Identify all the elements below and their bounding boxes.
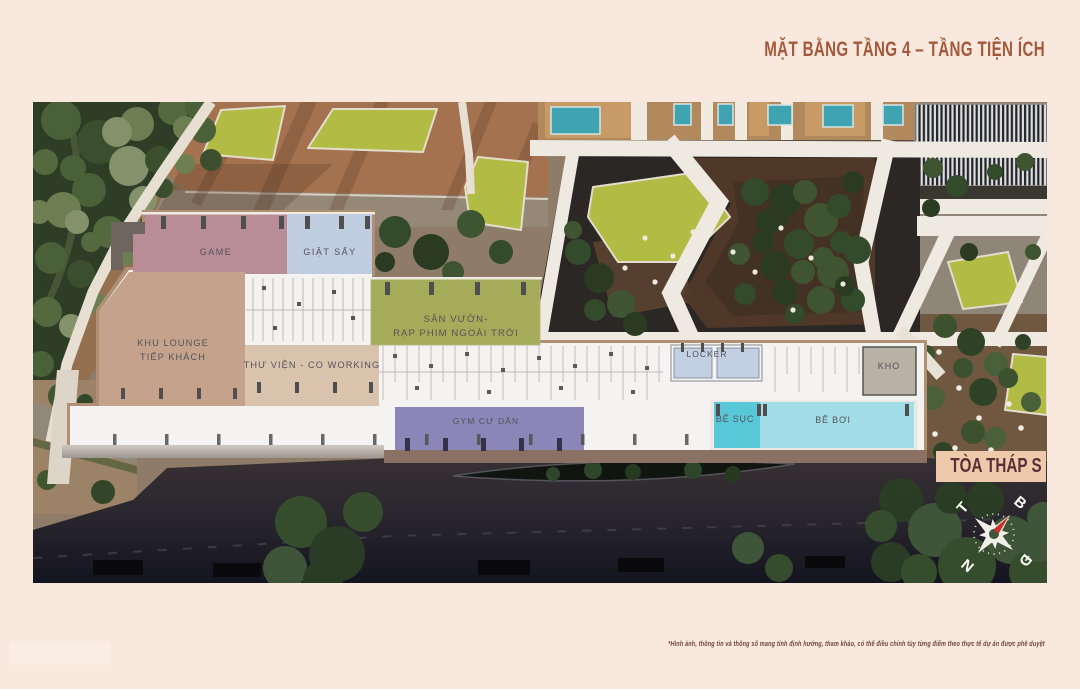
svg-text:THƯ VIỆN - CO WORKING: THƯ VIỆN - CO WORKING (244, 360, 381, 370)
svg-text:GYM CƯ DÂN: GYM CƯ DÂN (453, 416, 519, 426)
svg-text:RẠP PHIM NGOÀI TRỜI: RẠP PHIM NGOÀI TRỜI (393, 328, 519, 339)
svg-text:GAME: GAME (200, 247, 233, 257)
svg-text:LOCKER: LOCKER (687, 349, 728, 359)
svg-text:SÂN VƯỜN-: SÂN VƯỜN- (424, 314, 489, 325)
svg-text:TIẾP KHÁCH: TIẾP KHÁCH (140, 352, 206, 362)
svg-text:KHU LOUNGE: KHU LOUNGE (137, 338, 209, 348)
svg-text:BỂ SỤC: BỂ SỤC (716, 413, 754, 424)
svg-text:KHO: KHO (878, 361, 901, 371)
svg-text:BỂ BƠI: BỂ BƠI (815, 414, 851, 425)
svg-text:GIẶT SẤY: GIẶT SẤY (303, 247, 356, 257)
